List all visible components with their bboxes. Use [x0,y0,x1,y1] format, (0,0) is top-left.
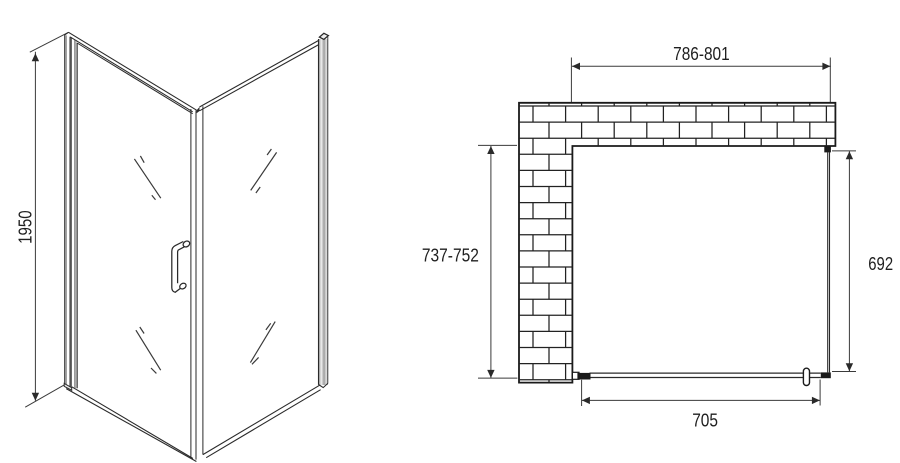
svg-text:1950: 1950 [15,210,35,244]
svg-text:737-752: 737-752 [422,245,479,265]
svg-text:692: 692 [868,254,893,274]
svg-text:786-801: 786-801 [673,44,730,64]
svg-text:705: 705 [692,411,718,431]
